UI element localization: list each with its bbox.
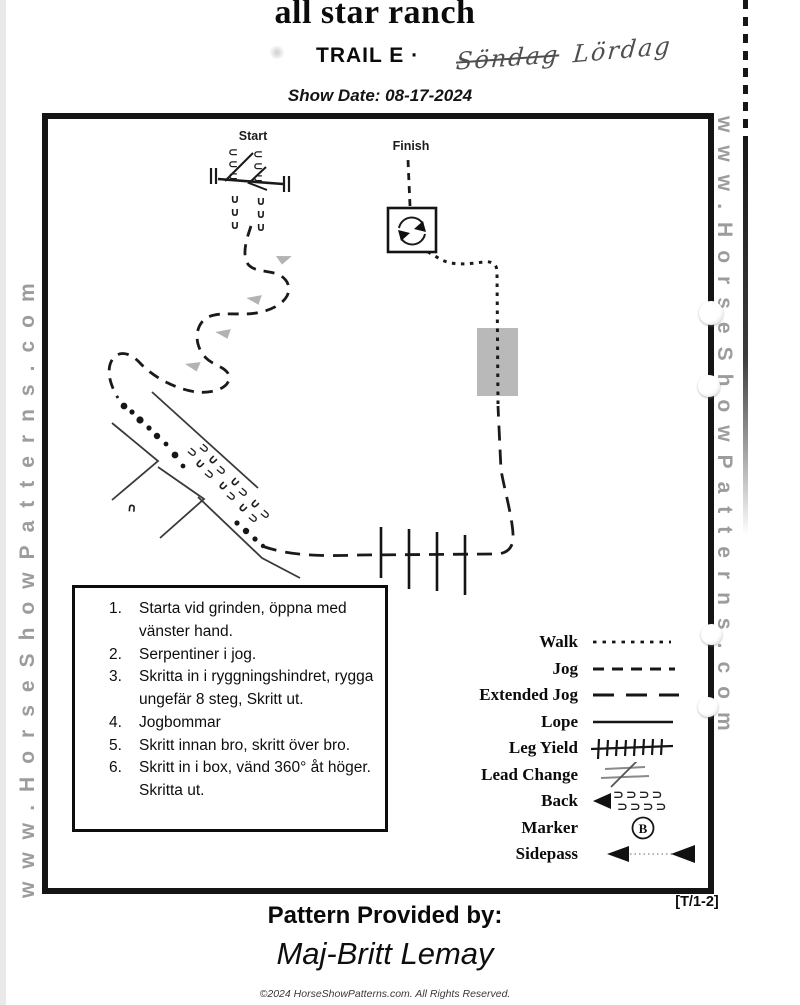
- svg-text:∪: ∪: [126, 501, 137, 516]
- trail-pattern-page: all star ranch TRAIL E · Söndag Lördag S…: [0, 0, 800, 1005]
- legend-row-leg-yield: Leg Yield: [468, 735, 700, 762]
- lope-line-symbol: [591, 710, 691, 734]
- provided-by-name: Maj-Britt Lemay: [0, 936, 770, 972]
- start-label: Start: [239, 129, 268, 143]
- direction-arrows: [184, 251, 293, 372]
- gait-legend: Walk Jog Extended Jog Lope Leg Yield: [468, 629, 700, 868]
- instruction-item: 1. Starta vid grinden, öppna med vänster…: [75, 598, 379, 644]
- jog-line-symbol: [591, 657, 691, 681]
- sidepass-symbol: [591, 842, 701, 866]
- punch-hole: [698, 375, 720, 397]
- svg-text:⊃: ⊃: [257, 506, 274, 523]
- punch-hole: [699, 301, 723, 325]
- legend-row-lead-change: Lead Change: [468, 762, 700, 789]
- svg-text:⊂: ⊂: [253, 171, 263, 185]
- svg-text:∪: ∪: [256, 207, 266, 221]
- svg-text:⊂: ⊂: [228, 169, 238, 183]
- legend-row-extended-jog: Extended Jog: [468, 682, 700, 709]
- instruction-item: 5. Skritt innan bro, skritt över bro.: [75, 735, 379, 758]
- instruction-item: 2. Serpentiner i jog.: [75, 644, 379, 667]
- instruction-item: 3. Skritta in i ryggningshindret, rygga …: [75, 666, 379, 712]
- spin-box: [388, 208, 436, 252]
- svg-text:∪: ∪: [230, 205, 240, 219]
- svg-text:∪: ∪: [256, 194, 266, 208]
- instruction-item: 4. Jogbommar: [75, 712, 379, 735]
- provided-by-label: Pattern Provided by:: [0, 902, 770, 930]
- svg-text:⊃⊃⊃⊃: ⊃⊃⊃⊃: [617, 800, 669, 815]
- punch-hole: [698, 697, 718, 717]
- instruction-item: 6. Skritt in i box, vänd 360° åt höger. …: [75, 757, 379, 803]
- back-symbol: ⊃⊃⊃⊃ ⊃⊃⊃⊃: [591, 787, 691, 815]
- finish-label: Finish: [393, 139, 430, 153]
- legend-row-marker: Marker B: [468, 815, 700, 842]
- legend-row-back: Back ⊃⊃⊃⊃ ⊃⊃⊃⊃: [468, 788, 700, 815]
- svg-text:∪: ∪: [230, 218, 240, 232]
- gate-obstacle: [211, 153, 289, 192]
- legend-row-sidepass: Sidepass: [468, 841, 700, 868]
- marker-letter: B: [639, 821, 648, 836]
- lope-to-poles-path: [262, 406, 513, 556]
- legend-row-walk: Walk: [468, 629, 700, 656]
- svg-text:⊃: ⊃: [196, 440, 213, 457]
- lead-change-symbol: [591, 762, 691, 788]
- legend-row-lope: Lope: [468, 709, 700, 736]
- svg-text:∪: ∪: [256, 220, 266, 234]
- punch-hole: [701, 624, 722, 645]
- copyright-line: ©2024 HorseShowPatterns.com. All Rights …: [0, 988, 770, 1000]
- svg-text:∪: ∪: [230, 192, 240, 206]
- legend-row-jog: Jog: [468, 656, 700, 683]
- leg-yield-symbol: [591, 735, 691, 761]
- marker-symbol: B: [591, 815, 691, 841]
- jog-poles: [381, 527, 465, 595]
- extended-jog-line-symbol: [591, 683, 691, 707]
- instruction-list: 1. Starta vid grinden, öppna med vänster…: [75, 598, 379, 803]
- instruction-box: 1. Starta vid grinden, öppna med vänster…: [72, 585, 388, 832]
- finish-exit-path: [408, 160, 410, 206]
- serpentine-jog-path: [109, 226, 289, 398]
- walk-line-symbol: [591, 630, 691, 654]
